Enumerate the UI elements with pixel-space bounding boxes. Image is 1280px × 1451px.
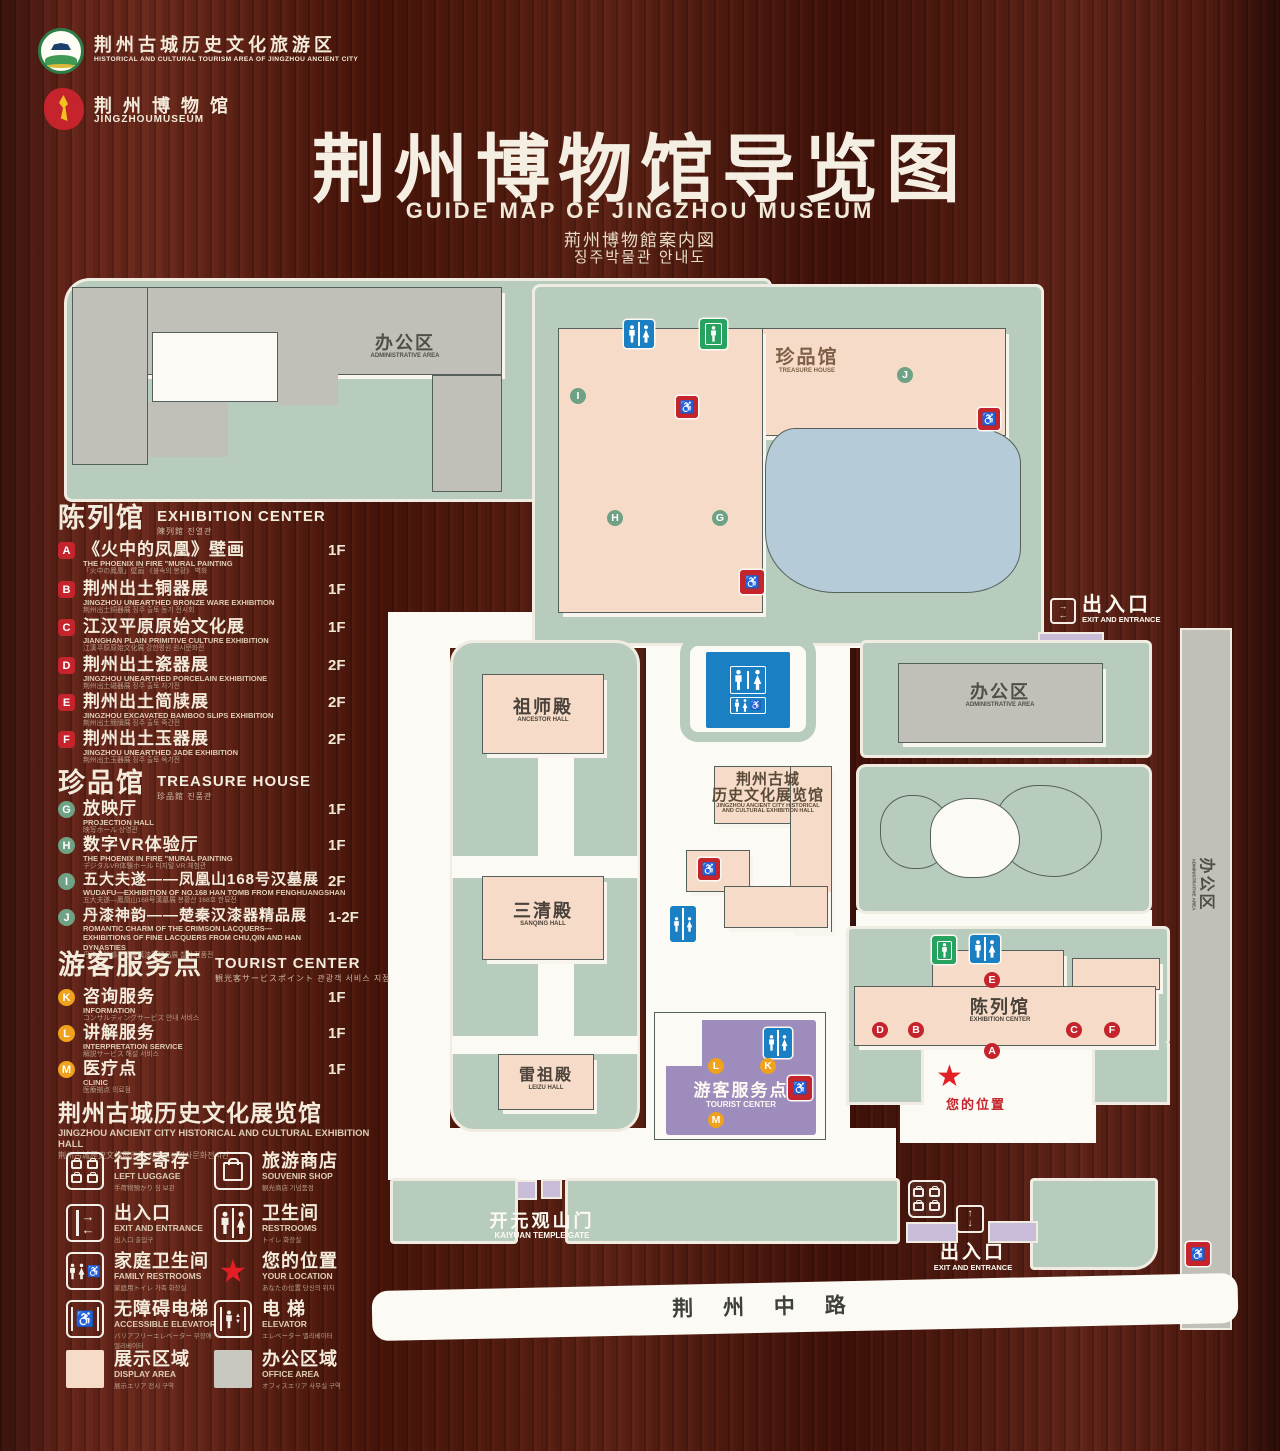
label-sanqing-hall: 三清殿 SANQING HALL [482, 902, 604, 927]
map-marker-b: B [908, 1022, 924, 1038]
legend-item-l: L 讲解服务 INTERPRETATION SERVICE 解説サービス 해설 … [58, 1024, 363, 1059]
halls-gap-1 [452, 856, 638, 878]
restrooms-icon [764, 1028, 792, 1058]
legend-hall-note: 荆州古城历史文化展览馆 JINGZHOU ANCIENT CITY HISTOR… [58, 1094, 388, 1161]
legend-item-a: A 《火中的凤凰》壁画 THE PHOENIX IN FIRE "MURAL P… [58, 541, 363, 576]
label-leizu-hall: 雷祖殿 LEIZU HALL [498, 1068, 594, 1091]
accessible-elevator-icon: ♿ [66, 1300, 104, 1338]
your-location-icon: ★ [936, 1062, 963, 1092]
building-admin-northwest-mid [278, 327, 338, 405]
badge-j: J [58, 909, 75, 926]
gate-south-east [988, 1221, 1038, 1243]
legend-item-m: M 医疗点 CLINIC 医療拠点 의료점 1F [58, 1060, 363, 1095]
map-marker-m: M [708, 1112, 724, 1128]
page-title-ko: 징주박물관 안내도 [0, 246, 1280, 267]
elevator-icon [932, 936, 956, 964]
exit-entrance-icon: →← [66, 1204, 104, 1242]
label-admin-strip: 办公区 ADMINISTRATIVE AREA [1192, 837, 1221, 933]
map-marker-g: G [712, 510, 728, 526]
building-admin-northwest-south [148, 402, 228, 457]
label-admin-northwest: 办公区 ADMINISTRATIVE AREA [330, 334, 480, 359]
badge-g: G [58, 801, 75, 818]
legend-item-g: G 放映厅 PROJECTION HALL 映写ホール 상영관 1F [58, 800, 363, 835]
map-marker-i: I [570, 388, 586, 404]
accessible-elevator-icon: ♿ [698, 858, 720, 880]
page-title-en: GUIDE MAP OF JINGZHOU MUSEUM [0, 198, 1280, 224]
legend-item-k: K 咨询服务 INFORMATION コンサルティングサービス 안내 서비스 1… [58, 988, 363, 1023]
badge-i: I [58, 873, 75, 890]
kaiyuan-gate-pillar-east [541, 1179, 562, 1199]
label-admin-east: 办公区 ADMINISTRATIVE AREA [925, 683, 1075, 708]
legend-accessible-elevator: ♿ 无障碍电梯 ACCESSIBLE ELEVATOR バリアフリーエレベーター… [66, 1300, 216, 1350]
legend-office-area: 办公区域 OFFICE AREA オフィスエリア 사무실 구역 [214, 1350, 364, 1390]
legend-your-location: ★ 您的位置 YOUR LOCATION あなたの位置 당신의 위치 [214, 1252, 364, 1292]
restrooms-family-icon: ♿ [706, 652, 790, 728]
exit-entrance-icon: →← [1050, 598, 1076, 624]
family-restrooms-icon: ♿ [66, 1252, 104, 1290]
map-marker-e: E [984, 972, 1000, 988]
restrooms-icon [670, 906, 696, 942]
zone-exhibition-center-leg-east [1092, 1043, 1170, 1105]
building-admin-northwest-wing [72, 287, 148, 465]
map-marker-k: K [760, 1058, 776, 1074]
map-marker-h: H [607, 510, 623, 526]
legend-exhibition-header: 陈列馆 EXHIBITION CENTER 陳列館 진열관 [58, 505, 326, 537]
map-plaza-your-location [900, 1043, 1096, 1143]
map-marker-c: C [1066, 1022, 1082, 1038]
road-jingzhou-middle: 荆 州 中 路 [372, 1273, 1239, 1341]
legend-family-restrooms: ♿ 家庭卫生间 FAMILY RESTROOMS 家庭用トイレ 가족 화장실 [66, 1252, 216, 1292]
label-exit-south: 出入口 EXIT AND ENTRANCE [906, 1243, 1040, 1272]
label-road: 荆 州 中 路 [372, 1273, 1239, 1341]
tourism-logo-title: 荆州古城历史文化旅游区 [94, 31, 336, 57]
badge-m: M [58, 1061, 75, 1078]
accessible-elevator-icon: ♿ [740, 570, 764, 594]
badge-k: K [58, 989, 75, 1006]
legend-elevator: ▲▼ 电 梯 ELEVATOR エレベーター 엘리베이터 [214, 1300, 364, 1340]
map-path-left [388, 648, 450, 1180]
accessible-elevator-icon: ♿ [978, 408, 1000, 430]
badge-f: F [58, 731, 75, 748]
legend-item-i: I 五大夫遂——凤凰山168号汉墓展 WUDAFU—EXHIBITION OF … [58, 872, 363, 905]
legend-exit-entrance: →← 出入口 EXIT AND ENTRANCE 出入口 출입구 [66, 1204, 216, 1244]
lake [765, 428, 1021, 593]
label-exit-northeast: 出入口 EXIT AND ENTRANCE [1082, 594, 1202, 624]
label-ancestor-hall: 祖师殿 ANCESTOR HALL [482, 698, 604, 723]
map-marker-d: D [872, 1022, 888, 1038]
badge-h: H [58, 837, 75, 854]
tourist-center-notch [666, 1020, 702, 1066]
building-treasure-house-west [558, 328, 763, 613]
garden-pond [930, 798, 1020, 878]
map-marker-j: J [897, 367, 913, 383]
gate-south-west [906, 1222, 958, 1243]
accessible-elevator-icon: ♿ [1186, 1242, 1210, 1266]
restrooms-icon [624, 320, 654, 348]
zone-exhibition-center-leg-west [846, 1043, 924, 1105]
tourism-logo-icon [38, 28, 84, 74]
legend-tourist-header: 游客服务点 TOURIST CENTER 観光客サービスポイント 관광객 서비스… [58, 952, 391, 984]
tourism-logo-subtitle: HISTORICAL AND CULTURAL TOURISM AREA OF … [94, 56, 358, 63]
map-marker-a: A [984, 1043, 1000, 1059]
kaiyuan-gate-pillar-west [516, 1180, 537, 1200]
map-marker-l: L [708, 1058, 724, 1074]
building-admin-northwest-east [432, 375, 502, 492]
tourism-area-logo [38, 28, 84, 74]
display-area-swatch [66, 1350, 104, 1388]
exit-entrance-icon: ↑↓ [956, 1205, 984, 1233]
accessible-elevator-icon: ♿ [788, 1076, 812, 1100]
label-city-exhibition-hall: 荆州古城 历史文化展览馆 JINGZHOU ANCIENT CITY HISTO… [688, 772, 848, 815]
restrooms-icon [214, 1204, 252, 1242]
left-luggage-icon [66, 1152, 104, 1190]
badge-b: B [58, 581, 75, 598]
badge-a: A [58, 542, 75, 559]
guide-map-poster: 荆州古城历史文化旅游区 HISTORICAL AND CULTURAL TOUR… [0, 0, 1280, 1451]
legend-item-d: D 荆州出土瓷器展 JINGZHOU UNEARTHED PORCELAIN E… [58, 656, 363, 691]
legend-item-e: E 荆州出土简牍展 JINGZHOU EXCAVATED BAMBOO SLIP… [58, 693, 363, 728]
building-admin-strip [1180, 628, 1232, 1330]
badge-c: C [58, 619, 75, 636]
elevator-icon [700, 319, 727, 349]
label-your-location: 您的位置 [916, 1094, 1036, 1113]
legend-treasure-header: 珍品馆 TREASURE HOUSE 珍品館 진품관 [58, 770, 311, 802]
legend-display-area: 展示区域 DISPLAY AREA 展示エリア 전시 구역 [66, 1350, 216, 1390]
courtyard-admin-northwest [152, 332, 278, 402]
zone-south-east [1030, 1178, 1158, 1270]
legend-item-c: C 江汉平原原始文化展 JIANGHAN PLAIN PRIMITIVE CUL… [58, 618, 363, 653]
map-marker-f: F [1104, 1022, 1120, 1038]
legend-left-luggage: 行李寄存 LEFT LUGGAGE 手荷物預かり 짐 보관 [66, 1152, 216, 1192]
office-area-swatch [214, 1350, 252, 1388]
badge-l: L [58, 1025, 75, 1042]
left-luggage-icon [908, 1180, 946, 1218]
building-city-exhibition-hall-south [724, 886, 828, 928]
label-exhibition-center: 陈列馆 EXHIBITION CENTER [935, 998, 1065, 1023]
elevator-icon: ▲▼ [214, 1300, 252, 1338]
label-treasure-house: 珍品馆 TREASURE HOUSE [742, 348, 872, 374]
legend-item-b: B 荆州出土铜器展 JINGZHOU UNEARTHED BRONZE WARE… [58, 580, 363, 615]
badge-e: E [58, 694, 75, 711]
legend-souvenir-shop: 旅游商店 SOUVENIR SHOP 観光商店 기념품점 [214, 1152, 364, 1192]
halls-gap-2 [452, 1036, 638, 1054]
souvenir-shop-icon [214, 1152, 252, 1190]
legend-item-f: F 荆州出土玉器展 JINGZHOU UNEARTHED JADE EXHIBI… [58, 730, 363, 765]
label-kaiyuan-gate: 开元观山门 KAIYUAN TEMPLE GATE [452, 1212, 632, 1241]
legend-restrooms: 卫生间 RESTROOMS トイレ 화장실 [214, 1204, 364, 1244]
badge-d: D [58, 657, 75, 674]
legend-item-h: H 数字VR体验厅 THE PHOENIX IN FIRE "MURAL PAI… [58, 836, 363, 871]
restrooms-icon [970, 935, 1000, 963]
your-location-icon: ★ [214, 1252, 252, 1290]
accessible-elevator-icon: ♿ [676, 396, 698, 418]
